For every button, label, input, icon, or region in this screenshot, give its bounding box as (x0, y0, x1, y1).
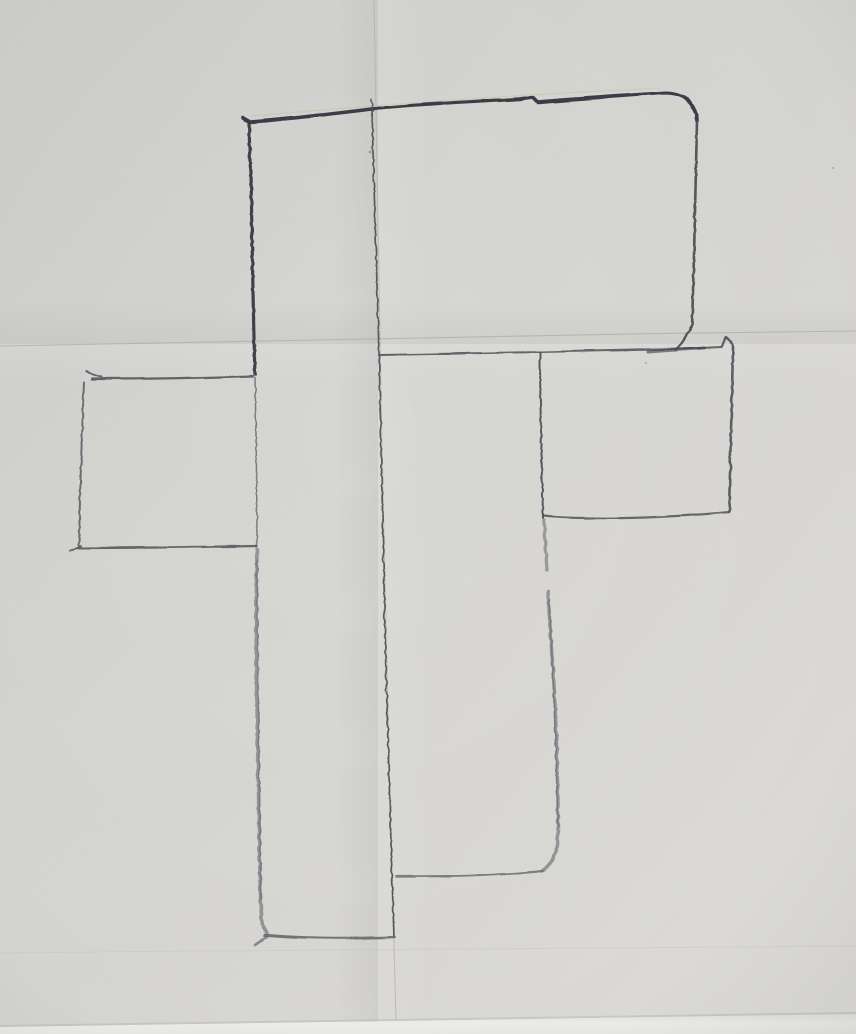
vignette (0, 0, 856, 1034)
paper-photo (0, 0, 856, 1034)
pencil-sketch-svg (0, 0, 856, 1034)
